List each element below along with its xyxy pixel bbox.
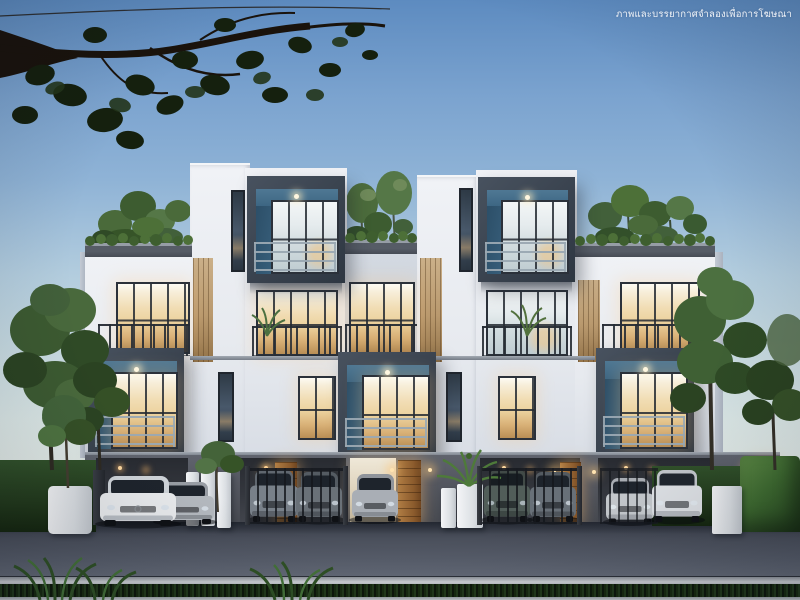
parapet-right-wing xyxy=(575,243,715,257)
rooftop-trees-center xyxy=(345,171,413,246)
balcony-box-2f-center xyxy=(338,352,436,458)
wood-panel-2 xyxy=(420,258,442,362)
wall-lamp-icon xyxy=(592,470,596,474)
entry-door-2 xyxy=(398,460,421,524)
balcony-railing xyxy=(95,416,176,447)
rooftop-trees-right-wing xyxy=(588,185,707,250)
gate-post xyxy=(245,466,250,525)
entry-gate-3 xyxy=(600,468,658,524)
fence-pillar-2 xyxy=(201,466,215,526)
architectural-rendering: ภาพและบรรยากาศจำลองเพื่อการโฆษณา xyxy=(0,0,800,600)
fence-pillar-3 xyxy=(217,472,231,528)
parapet-center-recess xyxy=(345,240,417,254)
entry-gate-2 xyxy=(480,468,580,524)
balcony-railing xyxy=(603,416,685,447)
gate-post xyxy=(477,466,482,525)
window-unit4-1f xyxy=(498,376,536,440)
fence-pillar-4 xyxy=(441,488,456,528)
window-strip-unit2 xyxy=(218,372,234,442)
balcony-box-3f-left xyxy=(247,176,345,283)
entry-gate-1 xyxy=(248,468,346,524)
window-strip-unit4 xyxy=(446,372,462,442)
downlight-icon xyxy=(525,195,530,200)
railing-unit4-2f xyxy=(482,326,572,356)
grass-strip xyxy=(0,584,800,597)
wall-right-return xyxy=(715,252,723,458)
railing-center-3f xyxy=(345,324,417,354)
downlight-icon xyxy=(134,367,139,372)
gate-post-left xyxy=(93,470,105,525)
watermark-disclaimer: ภาพและบรรยากาศจำลองเพื่อการโฆษณา xyxy=(616,7,792,22)
fence-pillar-1 xyxy=(186,472,199,526)
tree-branch-silhouette xyxy=(0,7,390,151)
hedge-right-lit xyxy=(740,456,800,532)
window-unit2-1f xyxy=(298,376,336,440)
gate-post xyxy=(577,466,582,525)
planter-left xyxy=(48,486,92,534)
balcony-railing xyxy=(345,418,427,448)
road xyxy=(0,522,800,578)
garage-bay-1 xyxy=(96,458,188,524)
wall-lamp-icon xyxy=(428,468,432,472)
parapet-left-wing xyxy=(85,243,192,257)
wood-panel-1 xyxy=(193,258,213,362)
entry-alcove-center xyxy=(350,458,396,524)
railing-unit2-2f xyxy=(252,326,342,356)
balcony-box-2f-left xyxy=(88,348,184,458)
window-strip-tower-2 xyxy=(459,188,473,272)
balcony-box-2f-right xyxy=(596,348,694,458)
fence-pillar-right xyxy=(712,486,742,534)
window-strip-tower-1 xyxy=(231,190,245,272)
balcony-box-3f-right xyxy=(478,177,575,282)
garage-light-icon xyxy=(118,466,122,470)
downlight-icon xyxy=(643,367,648,372)
wall-lamp-icon xyxy=(390,468,394,472)
rooftop-trees-left-wing xyxy=(92,191,191,250)
gate-post xyxy=(343,466,348,525)
balcony-railing xyxy=(485,242,567,271)
balcony-railing xyxy=(254,242,336,272)
